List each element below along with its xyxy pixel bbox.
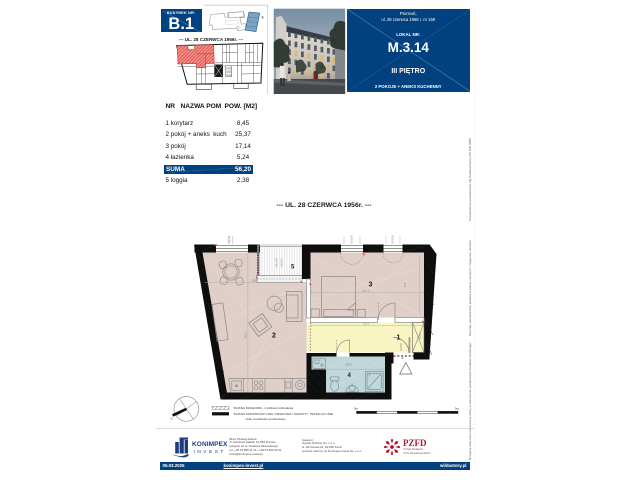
svg-text:1: 1 <box>397 335 401 342</box>
svg-text:90/140: 90/140 <box>228 235 232 243</box>
svg-text:327.5: 327.5 <box>363 289 370 293</box>
svg-text:90/200: 90/200 <box>399 342 403 350</box>
svg-text:110/220: 110/220 <box>350 234 354 244</box>
svg-text:2: 2 <box>272 333 276 340</box>
svg-text:3: 3 <box>369 282 373 289</box>
svg-text:0m: 0m <box>354 406 359 410</box>
svg-text:288.5: 288.5 <box>346 363 353 367</box>
svg-text:S: S <box>171 417 173 421</box>
svg-text:5m: 5m <box>455 406 460 410</box>
svg-text:230(30): 230(30) <box>280 258 284 267</box>
svg-text:278: 278 <box>403 282 407 287</box>
svg-text:35/85: 35/85 <box>418 332 422 339</box>
svg-text:110/220: 110/220 <box>391 234 395 244</box>
svg-text:254.1: 254.1 <box>252 279 259 283</box>
svg-text:244x208: 244x208 <box>275 257 279 268</box>
svg-text:363.5: 363.5 <box>363 321 370 325</box>
svg-text:516.1: 516.1 <box>244 331 248 338</box>
